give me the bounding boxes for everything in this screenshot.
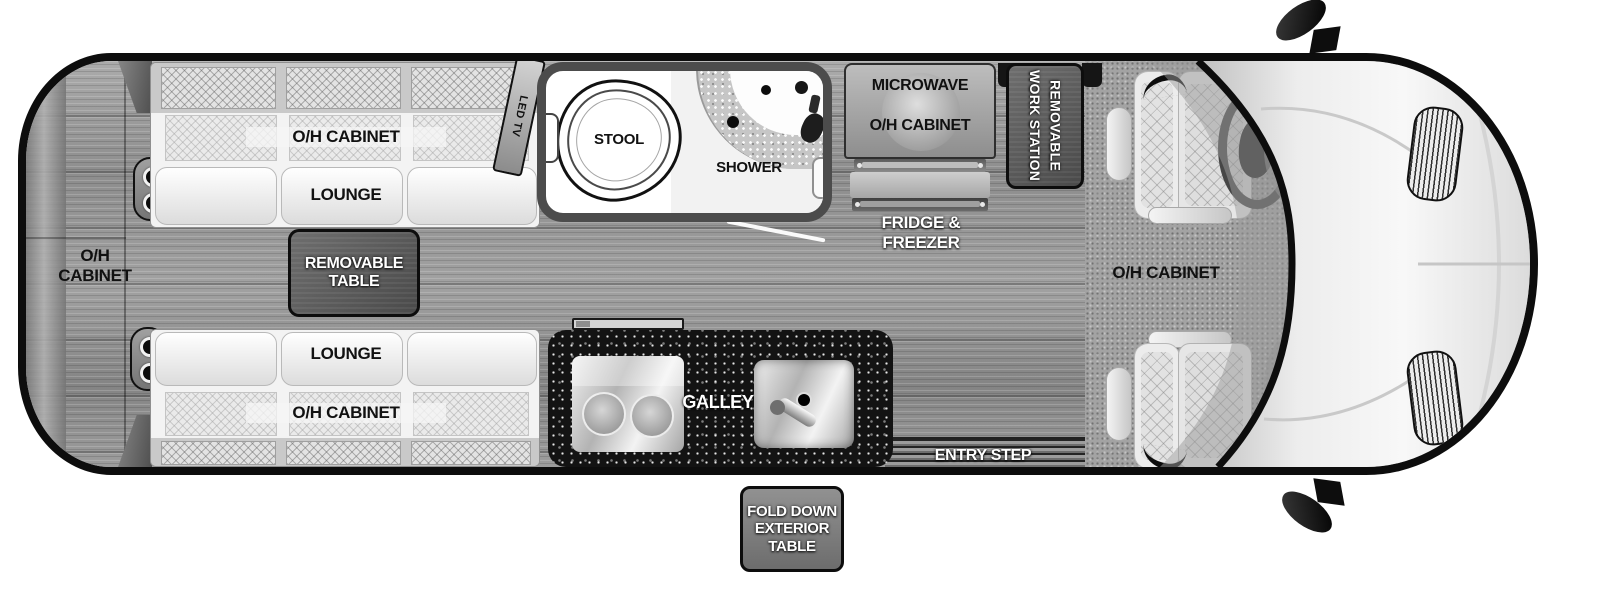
fold-down-exterior-table-label: FOLD DOWN EXTERIOR TABLE — [746, 503, 838, 555]
rv-floorplan-diagram: ENTRY STEP O/H CABINET — [0, 0, 1600, 592]
side-mirror-top-arm-icon — [1309, 26, 1340, 53]
fold-down-exterior-table: FOLD DOWN EXTERIOR TABLE — [740, 486, 844, 572]
van-body: ENTRY STEP O/H CABINET — [18, 53, 1538, 475]
side-mirror-bottom-arm-icon — [1313, 478, 1344, 505]
windshield-hood — [26, 61, 1530, 467]
